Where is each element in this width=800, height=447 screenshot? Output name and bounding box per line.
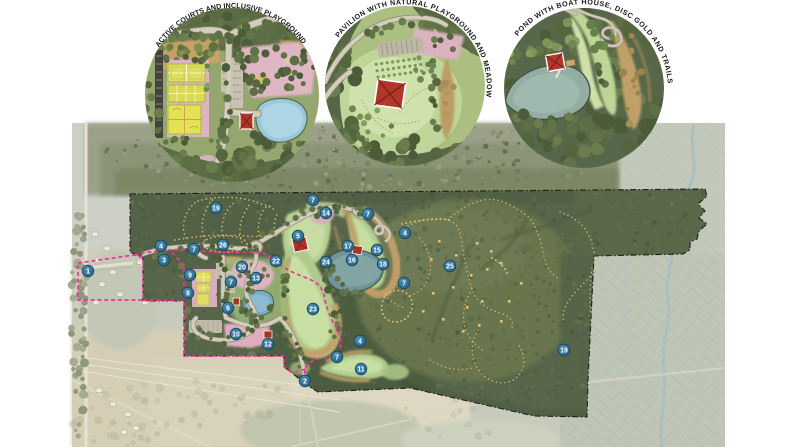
svg-text:2: 2 xyxy=(303,378,307,385)
svg-text:19: 19 xyxy=(212,205,220,212)
svg-text:12: 12 xyxy=(264,341,272,348)
svg-text:16: 16 xyxy=(348,257,356,264)
svg-text:6: 6 xyxy=(226,305,230,312)
svg-text:23: 23 xyxy=(309,306,317,313)
svg-text:20: 20 xyxy=(238,264,246,271)
svg-text:4: 4 xyxy=(358,338,362,345)
svg-text:7: 7 xyxy=(229,279,233,286)
svg-text:24: 24 xyxy=(322,259,330,266)
svg-text:13: 13 xyxy=(252,275,260,282)
svg-text:8: 8 xyxy=(186,290,190,297)
svg-text:7: 7 xyxy=(335,354,339,361)
svg-text:7: 7 xyxy=(311,197,315,204)
svg-text:17: 17 xyxy=(344,243,352,250)
svg-text:22: 22 xyxy=(272,258,280,265)
svg-text:26: 26 xyxy=(219,242,227,249)
svg-text:19: 19 xyxy=(560,347,568,354)
svg-text:11: 11 xyxy=(357,366,364,373)
svg-text:4: 4 xyxy=(159,243,163,250)
svg-text:7: 7 xyxy=(192,246,196,253)
svg-text:4: 4 xyxy=(403,230,407,237)
svg-text:7: 7 xyxy=(366,211,370,218)
svg-text:9: 9 xyxy=(188,272,192,279)
svg-text:14: 14 xyxy=(322,210,330,217)
svg-text:3: 3 xyxy=(162,257,166,264)
svg-text:15: 15 xyxy=(373,247,381,254)
svg-text:7: 7 xyxy=(402,280,406,287)
svg-text:25: 25 xyxy=(446,263,454,270)
svg-text:5: 5 xyxy=(296,233,300,240)
svg-text:1: 1 xyxy=(86,268,90,275)
svg-text:10: 10 xyxy=(232,331,240,338)
svg-text:18: 18 xyxy=(379,261,387,268)
